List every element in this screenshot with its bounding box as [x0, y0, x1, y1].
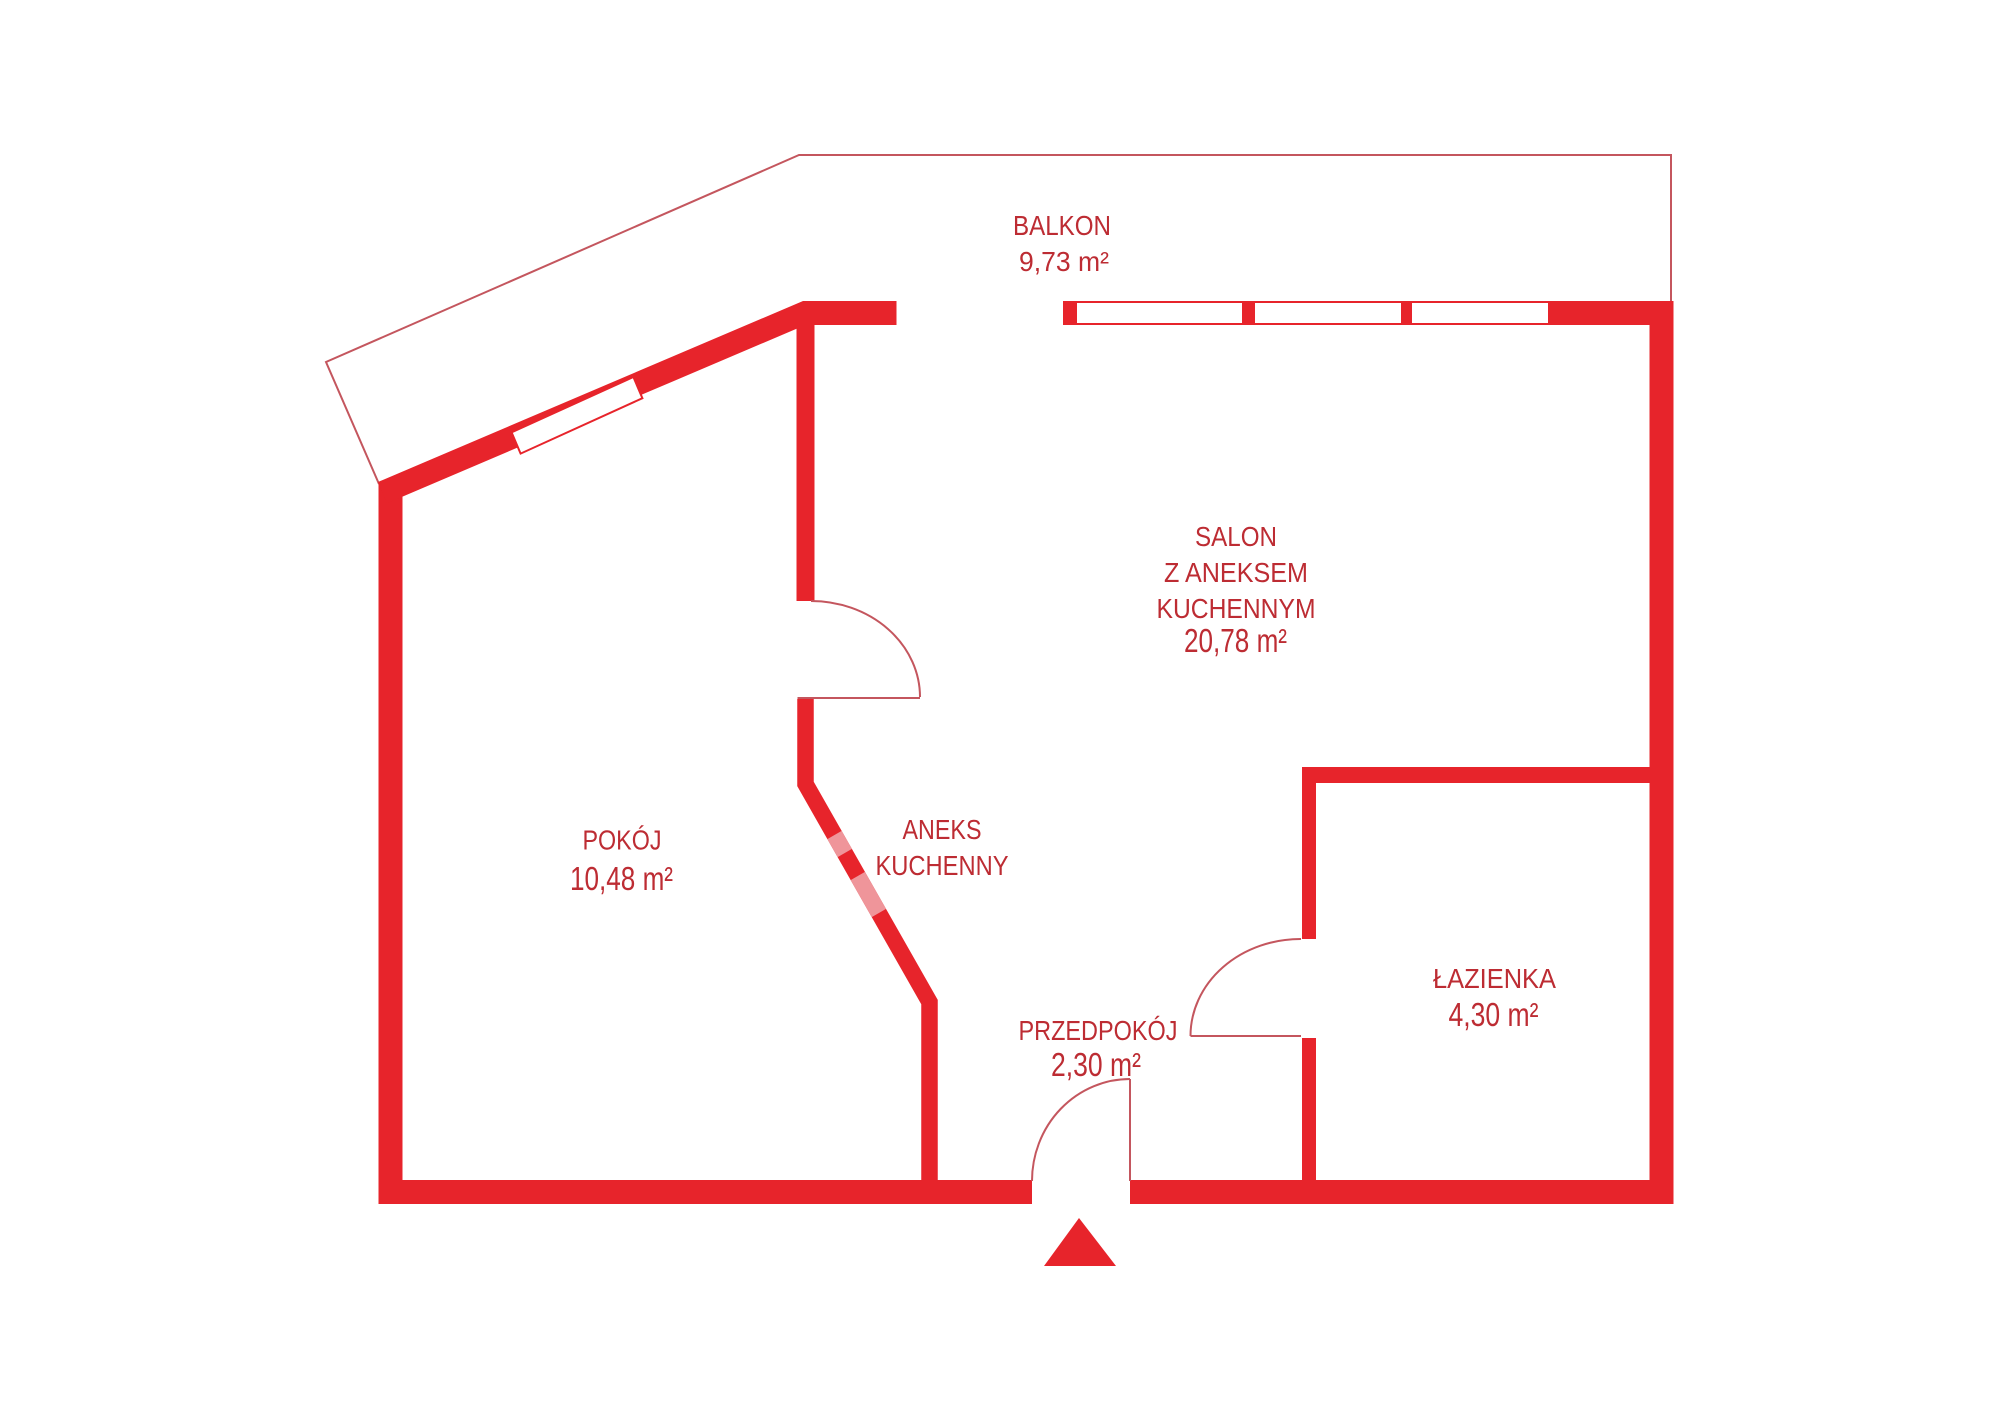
svg-text:2,30 m²: 2,30 m²: [1051, 1046, 1141, 1083]
svg-text:ANEKS: ANEKS: [903, 814, 982, 845]
svg-text:POKÓJ: POKÓJ: [583, 825, 662, 856]
svg-text:BALKON: BALKON: [1013, 210, 1111, 241]
svg-text:20,78 m²: 20,78 m²: [1184, 622, 1287, 659]
svg-text:KUCHENNYM: KUCHENNYM: [1157, 593, 1316, 624]
svg-text:Z ANEKSEM: Z ANEKSEM: [1164, 557, 1308, 588]
svg-text:SALON: SALON: [1195, 521, 1277, 552]
svg-text:KUCHENNY: KUCHENNY: [876, 850, 1009, 881]
svg-text:ŁAZIENKA: ŁAZIENKA: [1433, 963, 1557, 994]
svg-text:10,48 m²: 10,48 m²: [570, 860, 673, 897]
svg-text:PRZEDPOKÓJ: PRZEDPOKÓJ: [1019, 1015, 1178, 1046]
svg-text:9,73 m²: 9,73 m²: [1019, 246, 1109, 277]
svg-text:4,30 m²: 4,30 m²: [1449, 996, 1539, 1033]
